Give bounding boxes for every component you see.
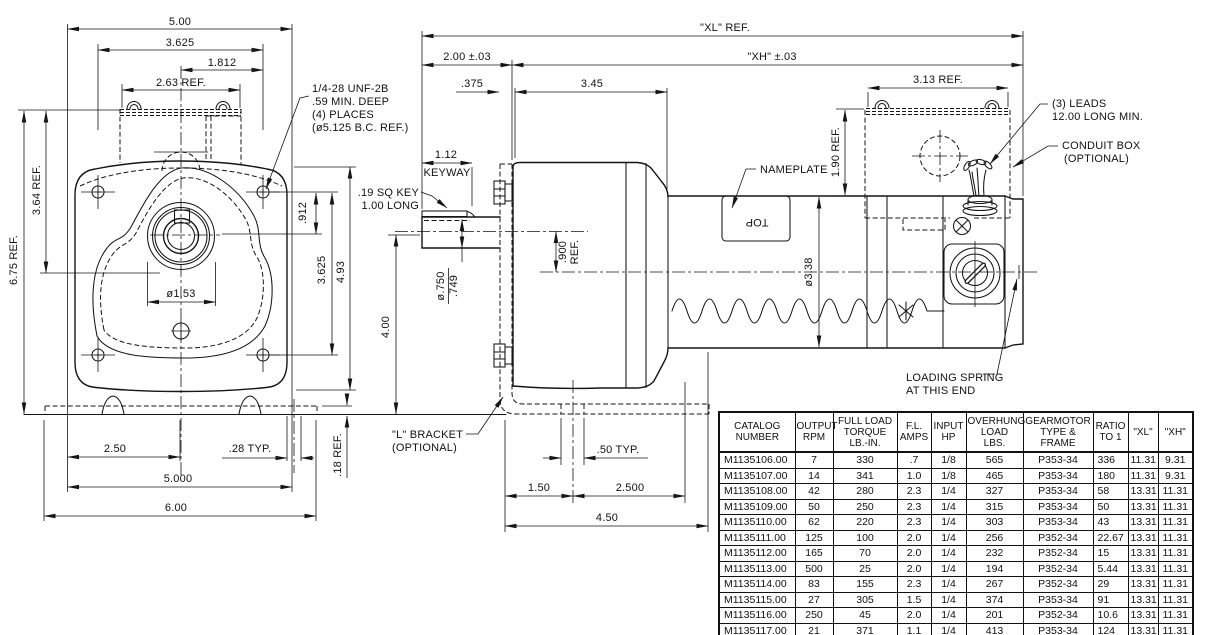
table-cell: 42 <box>795 484 833 500</box>
table-cell: 305 <box>833 592 897 608</box>
loading-spring <box>672 299 944 323</box>
table-header: OUTPUT RPM <box>795 412 833 452</box>
bolt-upper <box>494 181 505 204</box>
table-row: M1135113.00500252.01/4194P352-345.4413.3… <box>719 561 1193 577</box>
table-cell: P353-34 <box>1023 515 1093 531</box>
bracket-label1: "L" BRACKET <box>392 429 463 441</box>
table-cell: P352-34 <box>1023 608 1093 624</box>
table-cell: 9.31 <box>1158 452 1193 468</box>
table-row: M1135114.00831552.31/4267P352-342913.311… <box>719 577 1193 593</box>
lug-right <box>216 102 230 110</box>
dim-.900: .900 <box>557 241 569 263</box>
table-cell: 11.31 <box>1158 608 1193 624</box>
table-cell: M1135117.00 <box>719 623 795 635</box>
table-cell: 2.3 <box>897 499 931 515</box>
leads-note1: (3) LEADS <box>1052 98 1106 110</box>
table-cell: 13.31 <box>1128 546 1158 562</box>
table-cell: 1.5 <box>897 592 931 608</box>
table-cell: 267 <box>966 577 1023 593</box>
table-cell: 11.31 <box>1158 623 1193 635</box>
table-row: M1135112.00165702.01/4232P352-341513.311… <box>719 546 1193 562</box>
bracket-label2: (OPTIONAL) <box>392 442 457 454</box>
table-cell: P353-34 <box>1023 623 1093 635</box>
table-header: OVERHUNG LOAD LBS. <box>966 412 1023 452</box>
table-cell: 15 <box>1093 546 1128 562</box>
table-cell: 21 <box>795 623 833 635</box>
table-row: M1135111.001251002.01/4256P352-3422.6713… <box>719 530 1193 546</box>
table-cell: 465 <box>966 468 1023 484</box>
table-cell: M1135113.00 <box>719 561 795 577</box>
bearing-end-plate <box>944 241 1004 307</box>
table-cell: 22.67 <box>1093 530 1128 546</box>
table-cell: M1135114.00 <box>719 577 795 593</box>
table-cell: 1/4 <box>931 623 966 635</box>
lead-wires <box>963 158 997 215</box>
conduit-label1: CONDUIT BOX <box>1062 140 1141 152</box>
table-cell: 201 <box>966 608 1023 624</box>
table-cell: M1135109.00 <box>719 499 795 515</box>
lug-left <box>127 102 141 110</box>
nameplate-label: NAMEPLATE <box>760 164 828 176</box>
casting-profile <box>93 168 272 358</box>
dim-2.500: 2.500 <box>616 482 645 494</box>
dim-.912: .912 <box>297 202 309 224</box>
table-cell: 330 <box>833 452 897 468</box>
dim-4.93: 4.93 <box>335 261 347 283</box>
conduit-screw <box>954 218 971 235</box>
table-cell: 2.0 <box>897 530 931 546</box>
dim-3.45: 3.45 <box>581 78 603 90</box>
sq-key-note1: .19 SQ KEY <box>358 187 420 199</box>
table-cell: P352-34 <box>1023 577 1093 593</box>
dim-1.12: 1.12 <box>435 149 457 161</box>
table-cell: M1135106.00 <box>719 452 795 468</box>
dim-xl-ref: "XL" REF. <box>700 22 750 34</box>
table-cell: 11.31 <box>1128 452 1158 468</box>
table-cell: 327 <box>966 484 1023 500</box>
dim-1.812: 1.812 <box>208 57 237 69</box>
dim-6.75-ref: 6.75 REF. <box>8 235 20 285</box>
table-cell: 13.31 <box>1128 561 1158 577</box>
table-cell: 1/4 <box>931 608 966 624</box>
table-cell: 1/4 <box>931 515 966 531</box>
table-cell: 2.3 <box>897 484 931 500</box>
table-cell: 2.0 <box>897 608 931 624</box>
table-cell: 315 <box>966 499 1023 515</box>
table-cell: 13.31 <box>1128 592 1158 608</box>
table-cell: 2.3 <box>897 577 931 593</box>
table-cell: 11.31 <box>1158 499 1193 515</box>
spring-label2: AT THIS END <box>906 385 975 397</box>
table-cell: P353-34 <box>1023 468 1093 484</box>
table-cell: 500 <box>795 561 833 577</box>
table-cell: 220 <box>833 515 897 531</box>
table-cell: 2.3 <box>897 515 931 531</box>
table-cell: 336 <box>1093 452 1128 468</box>
table-cell: 7 <box>795 452 833 468</box>
table-cell: 9.31 <box>1158 468 1193 484</box>
spring-break-symbol <box>899 302 913 320</box>
base-hump-left <box>102 396 124 414</box>
table-cell: P353-34 <box>1023 484 1093 500</box>
table-cell: 1/4 <box>931 499 966 515</box>
table-header: F.L. AMPS <box>897 412 931 452</box>
table-row: M1135117.00213711.11/4413P353-3412413.31… <box>719 623 1193 635</box>
table-header: RATIO TO 1 <box>1093 412 1128 452</box>
table-cell: 125 <box>795 530 833 546</box>
table-cell: P353-34 <box>1023 452 1093 468</box>
table-cell: M1135116.00 <box>719 608 795 624</box>
table-cell: 180 <box>1093 468 1128 484</box>
tap-note-line1: 1/4-28 UNF-2B <box>312 83 389 95</box>
dim-3.13-ref: 3.13 REF. <box>913 74 963 86</box>
table-cell: P353-34 <box>1023 592 1093 608</box>
table-cell: 13.31 <box>1128 499 1158 515</box>
table-cell: 50 <box>1093 499 1128 515</box>
dim-3.38-dia: ø3.38 <box>803 257 815 286</box>
dim-2.50: 2.50 <box>104 443 126 455</box>
dim-.28-typ: .28 TYP. <box>229 443 272 455</box>
front-dimensions: 5.00 3.625 1.812 2.63 REF. 1/4-28 UNF-2B… <box>8 16 409 521</box>
table-cell: 2.0 <box>897 561 931 577</box>
dim-4.00: 4.00 <box>380 316 392 338</box>
dim-4.50: 4.50 <box>596 512 618 524</box>
table-cell: 1/4 <box>931 484 966 500</box>
table-cell: 11.31 <box>1158 484 1193 500</box>
table-body: M1135106.007330.71/8565P353-3433611.319.… <box>719 452 1193 635</box>
dim-3.64-ref: 3.64 REF. <box>31 165 43 215</box>
table-cell: 11.31 <box>1128 468 1158 484</box>
dim-.750: ø.750 <box>435 271 447 300</box>
table-cell: 43 <box>1093 515 1128 531</box>
table-cell: 11.31 <box>1158 515 1193 531</box>
table-cell: 194 <box>966 561 1023 577</box>
table-cell: 232 <box>966 546 1023 562</box>
table-row: M1135116.00250452.01/4201P352-3410.613.3… <box>719 608 1193 624</box>
table-cell: 13.31 <box>1128 623 1158 635</box>
table-cell: 13.31 <box>1128 577 1158 593</box>
table-cell: M1135110.00 <box>719 515 795 531</box>
table-cell: P352-34 <box>1023 546 1093 562</box>
leads-note2: 12.00 LONG MIN. <box>1052 111 1143 123</box>
table-cell: 11.31 <box>1158 592 1193 608</box>
table-cell: 1.0 <box>897 468 931 484</box>
table-cell: 13.31 <box>1128 484 1158 500</box>
table-row: M1135109.00502502.31/4315P353-345013.311… <box>719 499 1193 515</box>
output-shaft <box>422 211 500 248</box>
tap-note-line4: (ø5.125 B.C. REF.) <box>312 122 409 134</box>
dim-2.63-ref: 2.63 REF. <box>156 77 206 89</box>
table-row: M1135106.007330.71/8565P353-3433611.319.… <box>719 452 1193 468</box>
table-cell: P352-34 <box>1023 530 1093 546</box>
dim-5.00: 5.00 <box>169 16 191 28</box>
nameplate-top-label: TOP <box>745 216 768 228</box>
dim-5.000: 5.000 <box>164 473 193 485</box>
table-cell: 100 <box>833 530 897 546</box>
table-cell: 280 <box>833 484 897 500</box>
table-cell: 11.31 <box>1158 546 1193 562</box>
table-header: INPUT HP <box>931 412 966 452</box>
dim-1.50: 1.50 <box>528 482 550 494</box>
l-bracket <box>494 164 709 414</box>
catalog-spec-table: CATALOG NUMBEROUTPUT RPMFULL LOAD TORQUE… <box>718 411 1194 635</box>
table-row: M1135110.00622202.31/4303P353-344313.311… <box>719 515 1193 531</box>
spec-table-container: CATALOG NUMBEROUTPUT RPMFULL LOAD TORQUE… <box>718 411 1192 635</box>
table-cell: 1/8 <box>931 452 966 468</box>
table-header: "XL" <box>1128 412 1158 452</box>
table-cell: 413 <box>966 623 1023 635</box>
table-cell: 565 <box>966 452 1023 468</box>
dim-1.90-ref: 1.90 REF. <box>830 127 842 177</box>
table-cell: 13.31 <box>1128 530 1158 546</box>
front-view <box>45 66 317 477</box>
table-row: M1135108.00422802.31/4327P353-345813.311… <box>719 484 1193 500</box>
keyway-pocket <box>175 210 190 223</box>
table-cell: 11.31 <box>1158 577 1193 593</box>
dim-.749: .749 <box>448 275 460 297</box>
dim-1.53-dia: ø1.53 <box>166 288 195 300</box>
table-cell: M1135112.00 <box>719 546 795 562</box>
table-cell: 124 <box>1093 623 1128 635</box>
table-cell: 341 <box>833 468 897 484</box>
dim-.375: .375 <box>461 78 483 90</box>
table-row: M1135115.00273051.51/4374P353-349113.311… <box>719 592 1193 608</box>
table-header: CATALOG NUMBER <box>719 412 795 452</box>
table-cell: 371 <box>833 623 897 635</box>
table-cell: 1/8 <box>931 468 966 484</box>
table-cell: 155 <box>833 577 897 593</box>
table-header: FULL LOAD TORQUE LB.-IN. <box>833 412 897 452</box>
gearbox-side <box>513 163 668 389</box>
table-cell: 374 <box>966 592 1023 608</box>
table-cell: 58 <box>1093 484 1128 500</box>
table-cell: M1135107.00 <box>719 468 795 484</box>
conduit-flange <box>903 219 945 230</box>
dim-.900-ref: REF. <box>569 240 581 265</box>
table-cell: 45 <box>833 608 897 624</box>
table-cell: 25 <box>833 561 897 577</box>
tap-note-line3: (4) PLACES <box>312 109 374 121</box>
table-cell: 83 <box>795 577 833 593</box>
spring-label1: LOADING SPRING <box>906 372 1004 384</box>
table-cell: 1/4 <box>931 577 966 593</box>
dim-xh: "XH" ±.03 <box>747 51 796 63</box>
table-cell: 62 <box>795 515 833 531</box>
table-cell: 250 <box>795 608 833 624</box>
table-cell: .7 <box>897 452 931 468</box>
table-cell: 70 <box>833 546 897 562</box>
lug-left <box>875 101 889 108</box>
table-header: GEARMOTOR TYPE & FRAME <box>1023 412 1093 452</box>
tap-note-line2: .59 MIN. DEEP <box>312 96 389 108</box>
table-cell: 1/4 <box>931 546 966 562</box>
table-cell: 256 <box>966 530 1023 546</box>
gearmotor-drawing-sheet: 5.00 3.625 1.812 2.63 REF. 1/4-28 UNF-2B… <box>0 0 1214 635</box>
table-cell: 1/4 <box>931 561 966 577</box>
lug-right <box>985 101 999 108</box>
table-cell: 11.31 <box>1158 561 1193 577</box>
table-cell: 165 <box>795 546 833 562</box>
table-cell: P352-34 <box>1023 561 1093 577</box>
dim-.18-ref: .18 REF. <box>332 433 344 477</box>
table-head-row: CATALOG NUMBEROUTPUT RPMFULL LOAD TORQUE… <box>719 412 1193 452</box>
table-cell: 27 <box>795 592 833 608</box>
table-cell: M1135115.00 <box>719 592 795 608</box>
table-cell: 29 <box>1093 577 1128 593</box>
table-cell: M1135111.00 <box>719 530 795 546</box>
dim-.50-typ: .50 TYP. <box>597 444 640 456</box>
table-cell: 91 <box>1093 592 1128 608</box>
dim-3.625-vert: 3.625 <box>316 256 328 285</box>
table-cell: P353-34 <box>1023 499 1093 515</box>
table-cell: 14 <box>795 468 833 484</box>
table-cell: 50 <box>795 499 833 515</box>
table-cell: 5.44 <box>1093 561 1128 577</box>
table-row: M1135107.00143411.01/8465P353-3418011.31… <box>719 468 1193 484</box>
table-cell: 11.31 <box>1158 530 1193 546</box>
conduit-label2: (OPTIONAL) <box>1064 153 1129 165</box>
table-cell: 10.6 <box>1093 608 1128 624</box>
dim-6.00: 6.00 <box>165 502 187 514</box>
table-cell: 250 <box>833 499 897 515</box>
table-cell: 2.0 <box>897 546 931 562</box>
table-cell: 1/4 <box>931 530 966 546</box>
table-header: "XH" <box>1158 412 1193 452</box>
table-cell: 1.1 <box>897 623 931 635</box>
table-cell: 303 <box>966 515 1023 531</box>
dim-2.00: 2.00 ±.03 <box>443 51 491 63</box>
table-cell: 1/4 <box>931 592 966 608</box>
nameplate: TOP <box>722 196 790 241</box>
dim-3.625: 3.625 <box>166 37 195 49</box>
table-cell: 13.31 <box>1128 515 1158 531</box>
side-view: TOP <box>24 101 1037 415</box>
sq-key-note2: 1.00 LONG <box>362 200 419 212</box>
table-cell: 13.31 <box>1128 608 1158 624</box>
table-cell: M1135108.00 <box>719 484 795 500</box>
base-hump-right <box>239 396 261 414</box>
shaft-key <box>422 211 467 217</box>
keyway-label: KEYWAY <box>423 167 471 179</box>
